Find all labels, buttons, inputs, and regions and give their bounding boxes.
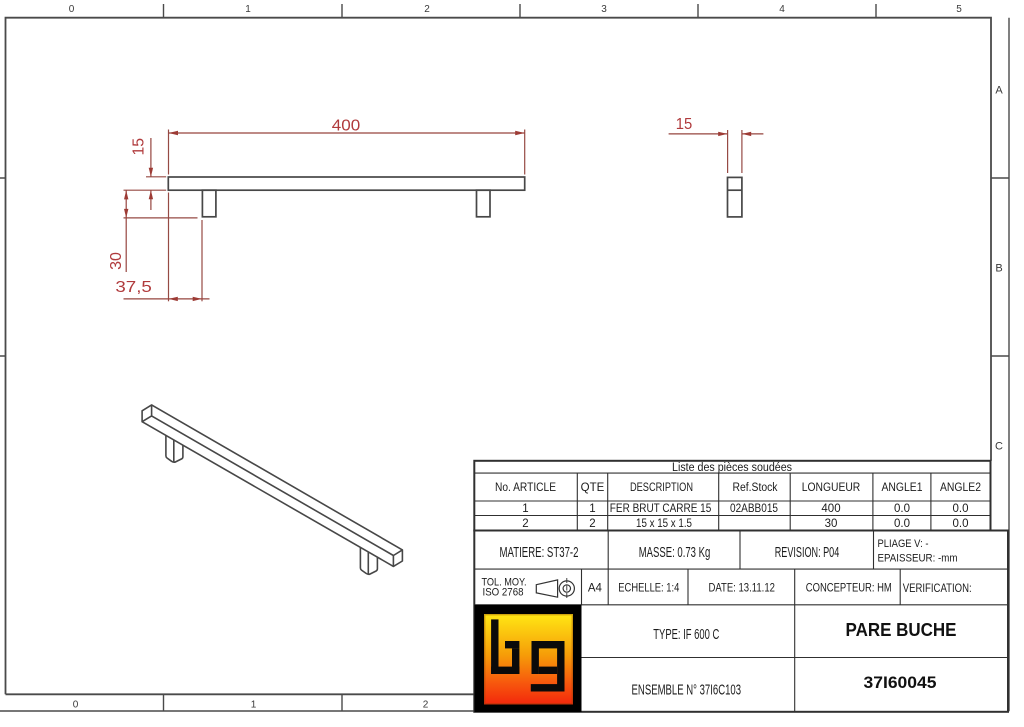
- svg-text:4: 4: [779, 4, 785, 15]
- svg-text:15: 15: [676, 116, 693, 133]
- svg-text:A: A: [995, 85, 1003, 97]
- svg-text:QTE: QTE: [581, 482, 605, 494]
- svg-text:30: 30: [825, 518, 838, 530]
- svg-text:5: 5: [956, 4, 962, 15]
- svg-text:EPAISSEUR: -mm: EPAISSEUR: -mm: [878, 552, 958, 564]
- svg-text:B: B: [995, 263, 1002, 275]
- svg-text:ANGLE2: ANGLE2: [940, 482, 981, 494]
- svg-text:A4: A4: [588, 583, 603, 595]
- svg-text:ECHELLE: 1:4: ECHELLE: 1:4: [618, 583, 679, 595]
- svg-text:TYPE: IF 600 C: TYPE: IF 600 C: [653, 627, 719, 643]
- svg-text:15 x 15 x 1.5: 15 x 15 x 1.5: [636, 518, 692, 530]
- svg-text:ISO 2768: ISO 2768: [483, 586, 524, 598]
- svg-text:15: 15: [131, 138, 148, 156]
- svg-text:0.0: 0.0: [894, 503, 910, 515]
- svg-text:LONGUEUR: LONGUEUR: [802, 482, 861, 494]
- svg-text:1: 1: [589, 503, 595, 515]
- svg-text:0.0: 0.0: [953, 518, 969, 530]
- svg-text:ENSEMBLE N° 37I6C103: ENSEMBLE N° 37I6C103: [632, 682, 742, 698]
- svg-text:400: 400: [332, 117, 361, 134]
- svg-text:1: 1: [251, 700, 257, 711]
- svg-text:2: 2: [522, 518, 528, 530]
- svg-text:PLIAGE V: -: PLIAGE V: -: [878, 538, 929, 550]
- svg-text:CONCEPTEUR: HM: CONCEPTEUR: HM: [806, 583, 892, 595]
- svg-text:0: 0: [69, 4, 75, 15]
- svg-text:30: 30: [108, 252, 125, 270]
- svg-text:400: 400: [821, 503, 840, 515]
- svg-text:MASSE: 0.73 Kg: MASSE: 0.73 Kg: [639, 545, 711, 561]
- svg-text:2: 2: [589, 518, 595, 530]
- svg-text:3: 3: [601, 4, 607, 15]
- svg-text:MATIERE: ST37-2: MATIERE: ST37-2: [500, 545, 579, 561]
- svg-text:1: 1: [245, 4, 251, 15]
- svg-text:Liste des pièces soudées: Liste des pièces soudées: [672, 462, 792, 474]
- svg-text:0.0: 0.0: [894, 518, 910, 530]
- svg-text:FER BRUT CARRE 15: FER BRUT CARRE 15: [610, 503, 712, 515]
- svg-text:VERIFICATION:: VERIFICATION:: [903, 583, 972, 595]
- svg-text:0.0: 0.0: [953, 503, 969, 515]
- svg-text:37I60045: 37I60045: [864, 674, 937, 692]
- svg-text:DESCRIPTION: DESCRIPTION: [630, 482, 693, 494]
- svg-text:PARE BUCHE: PARE BUCHE: [846, 619, 957, 640]
- svg-text:Ref.Stock: Ref.Stock: [733, 482, 778, 494]
- svg-text:ANGLE1: ANGLE1: [882, 482, 923, 494]
- svg-text:2: 2: [424, 4, 430, 15]
- svg-text:37,5: 37,5: [115, 279, 152, 296]
- svg-text:1: 1: [522, 503, 528, 515]
- svg-text:2: 2: [423, 700, 429, 711]
- svg-text:02ABB015: 02ABB015: [730, 503, 778, 515]
- svg-text:REVISION: P04: REVISION: P04: [775, 545, 840, 561]
- svg-text:C: C: [995, 441, 1003, 453]
- svg-text:0: 0: [73, 700, 79, 711]
- svg-text:No. ARTICLE: No. ARTICLE: [495, 482, 556, 494]
- svg-text:DATE: 13.11.12: DATE: 13.11.12: [708, 583, 775, 595]
